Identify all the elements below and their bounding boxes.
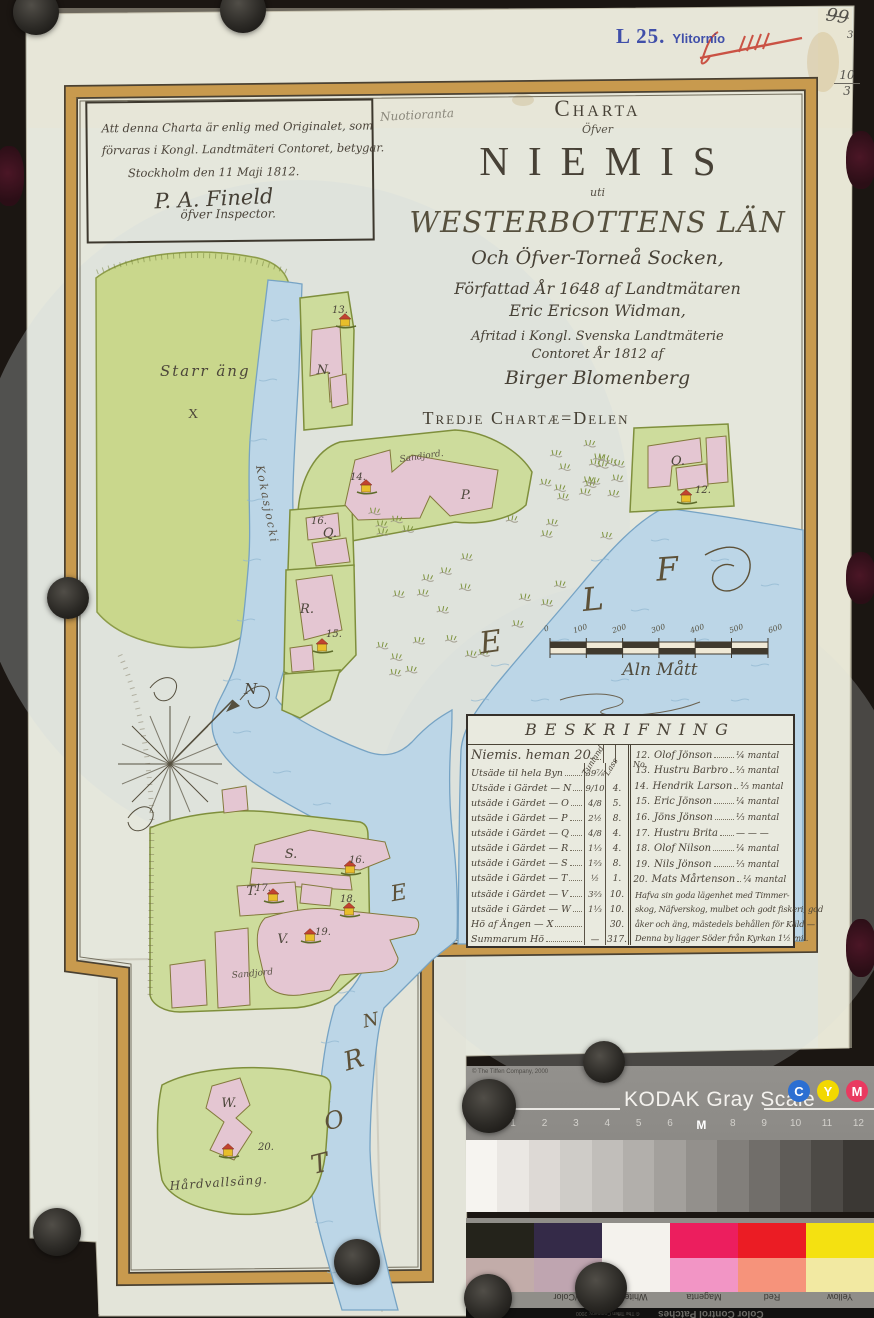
gray-patch <box>466 1140 497 1212</box>
table-row: utsäde i Gärdet — R 1⅓ 4. <box>468 839 628 854</box>
table-row: utsäde i Gärdet — S 1⅔ 8. <box>468 854 628 869</box>
holding-magnet <box>334 1239 380 1285</box>
scale-tick-labels: 0100200300400500600 <box>544 624 782 633</box>
table-row: 18. Olof Nilson ¼ mantal <box>631 839 796 855</box>
table-row: utsäde i Gärdet — V 3⅔ 10. <box>468 884 628 899</box>
table-row: Summarum Hö — 317. <box>468 930 628 945</box>
kodak-step-label: 10 <box>780 1118 811 1132</box>
meadow-label: Starr äng <box>160 362 251 380</box>
table-note-line: skog, Näfverskog, mulbet och godt fisker… <box>631 900 796 915</box>
compass-north-letter: N <box>243 680 258 698</box>
house-number-12: 12. <box>695 485 711 496</box>
stamp-code: L 25. <box>616 24 665 49</box>
kodak-step-label: 9 <box>749 1118 780 1132</box>
house-number-15: 15. <box>326 629 342 640</box>
fraction-numerator: 10 <box>834 68 860 84</box>
table-row: utsäde i Gärdet — Q 4/8 4. <box>468 824 628 839</box>
color-patch-column <box>806 1223 874 1292</box>
table-left-section: Niemis. heman 20. Utsäde til hela Byn 39… <box>468 745 628 945</box>
color-patch-label: Yellow <box>806 1292 874 1302</box>
title-made1: Författad År 1648 af Landtmätaren <box>385 279 810 298</box>
edge-clamp <box>846 131 874 189</box>
color-patch-column <box>670 1223 738 1292</box>
table-row: 14. Hendrik Larson ⅓ mantal <box>631 776 796 792</box>
kodak-step-label: 3 <box>560 1118 591 1132</box>
house-number-13: 13. <box>332 305 348 316</box>
water-letter-f: F <box>654 549 682 589</box>
kodak-step-label: 5 <box>623 1118 654 1132</box>
gray-patch <box>811 1140 842 1212</box>
gray-patch <box>654 1140 685 1212</box>
title-uti: uti <box>385 186 810 199</box>
parcel-letter-w: W. <box>221 1096 236 1111</box>
title-copy2: Contoret År 1812 af <box>385 347 810 362</box>
color-control-card: Black3/ColorWhiteMagentaRedYellow © The … <box>466 1218 874 1318</box>
gray-patch <box>592 1140 623 1212</box>
edge-clamp <box>846 919 874 977</box>
kodak-step-label: 4 <box>592 1118 623 1132</box>
title-ofver: Öfver <box>385 123 810 136</box>
table-row: Utsäde i Gärdet — N 9/10 4. <box>468 779 628 794</box>
magenta-dot: M <box>846 1080 868 1102</box>
parcel-letter-s: S. <box>285 847 298 862</box>
holding-magnet <box>462 1079 516 1133</box>
cyan-dot: C <box>788 1080 810 1102</box>
col-header-no: No. <box>633 760 647 769</box>
house-number-18: 18. <box>340 894 356 905</box>
title-copy1: Afritad i Kongl. Svenska Landtmäterie <box>385 329 810 344</box>
attestation-line2: förvaras i Kongl. Landtmäteri Contoret, … <box>102 137 362 162</box>
table-row: 16. Jöns Jönson ⅓ mantal <box>631 807 796 823</box>
kodak-copyright: © The Tiffen Company, 2000 <box>472 1069 548 1075</box>
gray-patch <box>717 1140 748 1212</box>
gray-patch <box>780 1140 811 1212</box>
pencil-fraction: 10 3 <box>834 68 860 98</box>
table-row: 17. Hustru Brita — — — <box>631 823 796 839</box>
parcel-letter-q: Q. <box>323 526 337 541</box>
color-patch-label: Magenta <box>670 1292 738 1302</box>
house-number-19: 19. <box>315 927 331 938</box>
gray-patch <box>686 1140 717 1212</box>
attestation-box: Att denna Charta är enlig med Originalet… <box>85 98 374 243</box>
parcel-letter-r: R. <box>299 602 314 617</box>
water-letter-l: L <box>579 579 605 619</box>
gray-patch <box>560 1140 591 1212</box>
table-note-line: Hafva sin goda lägenhet med Timmer- <box>631 885 796 900</box>
kodak-step-label: M <box>686 1118 717 1132</box>
house-number-16: 16. <box>349 855 365 866</box>
gray-patch <box>749 1140 780 1212</box>
kodak-gray-patches <box>466 1140 874 1212</box>
parcel-letter-n: N. <box>316 363 332 378</box>
table-row: 20. Mats Mårtenson ¼ mantal <box>631 870 796 886</box>
kodak-gray-scale-card: © The Tiffen Company, 2000 KODAK Gray Sc… <box>466 1066 874 1212</box>
table-notes: Hafva sin goda lägenhet med Timmer-skog,… <box>631 885 796 943</box>
scale-tick: 0 <box>543 623 550 633</box>
table-row: utsäde i Gärdet — P 2½ 8. <box>468 809 628 824</box>
holding-magnet <box>464 1274 512 1318</box>
title-author: Birger Blomenberg <box>385 367 810 389</box>
kodak-step-labels: A123456M89101112 <box>466 1118 874 1132</box>
kodak-step-label: 6 <box>654 1118 685 1132</box>
scale-caption: Aln Mått <box>600 660 720 680</box>
pencil-page-sub: 3 <box>847 30 853 41</box>
table-note-line: åker och äng, mästedels behållen för Käl… <box>631 914 796 929</box>
holding-magnet <box>575 1262 627 1314</box>
yellow-dot: Y <box>817 1080 839 1102</box>
table-row: utsäde i Gärdet — O 4/8 5. <box>468 794 628 809</box>
gray-patch <box>529 1140 560 1212</box>
parcel-number-16q: 16. <box>311 516 327 527</box>
kodak-step-label: 11 <box>811 1118 842 1132</box>
title-charta: Charta <box>385 96 810 122</box>
edge-clamp <box>846 552 874 604</box>
archive-stamp: L 25. Ylitornio <box>616 24 725 49</box>
title-county: WESTERBOTTENS LÄN <box>385 205 810 239</box>
photo-of-historical-map: Starr äng X Kokasjocki N. P. Q. R. O. S.… <box>0 0 874 1318</box>
parcel-letter-v: V. <box>277 932 288 947</box>
stamp-place: Ylitornio <box>672 31 725 46</box>
table-row: 13. Hustru Barbro ⅓ mantal <box>631 761 796 777</box>
table-row: 19. Nils Jönson ⅓ mantal <box>631 854 796 870</box>
pencil-page-number: 99 <box>824 4 850 28</box>
color-card-title: Color Control Patches <box>658 1308 764 1318</box>
house-number-17: 17. <box>255 883 271 894</box>
color-card-footer: © The Tiffen Company, 2000 Color Control… <box>466 1308 874 1318</box>
title-parish: Och Öfver-Torneå Socken, <box>385 247 810 269</box>
gray-patch <box>497 1140 528 1212</box>
title-made2: Eric Ericson Widman, <box>385 301 810 320</box>
table-row: 12. Olof Jönson ¼ mantal <box>631 745 796 761</box>
parcel-letter-p: P. <box>460 488 471 503</box>
color-patch-labels: Black3/ColorWhiteMagentaRedYellow <box>466 1292 874 1302</box>
holding-magnet <box>47 577 89 619</box>
edge-clamp <box>0 146 24 206</box>
color-patch-column <box>738 1223 806 1292</box>
table-right-section: 12. Olof Jönson ¼ mantal 13. Hustru Barb… <box>628 745 796 945</box>
table-row: Hö af Ängen — X 30. <box>468 915 628 930</box>
kodak-title: KODAK Gray Scale <box>624 1088 815 1112</box>
attestation-line1: Att denna Charta är enlig med Originalet… <box>101 115 361 140</box>
description-table: BESKRIFNING Niemis. heman 20. Utsäde til… <box>466 714 795 948</box>
kodak-step-label: 8 <box>717 1118 748 1132</box>
table-heading: BESKRIFNING <box>468 716 793 745</box>
house-number-14: 14. <box>350 472 366 483</box>
table-row: utsäde i Gärdet — T ½ 1. <box>468 869 628 884</box>
parcel-letter-o: O. <box>671 454 685 469</box>
kodak-step-label: 2 <box>529 1118 560 1132</box>
fraction-denominator: 3 <box>834 84 860 98</box>
color-patch-label: Red <box>738 1292 806 1302</box>
table-note-line: Denna by ligger Söder från Kyrkan 1½ mil… <box>631 929 796 944</box>
section-heading: Tredje Chartæ=Delen <box>392 408 660 429</box>
map-title-block: Charta Öfver NIEMIS uti WESTERBOTTENS LÄ… <box>385 96 810 389</box>
holding-magnet <box>33 1208 81 1256</box>
table-owner-rows: 12. Olof Jönson ¼ mantal 13. Hustru Barb… <box>631 745 796 885</box>
table-row: utsäde i Gärdet — W 1⅓ 10. <box>468 900 628 915</box>
color-patches <box>466 1223 874 1292</box>
house-number-20: 20. <box>257 1142 274 1153</box>
meadow-letter-x: X <box>188 407 198 422</box>
title-niemis: NIEMIS <box>385 137 810 185</box>
gray-patch <box>623 1140 654 1212</box>
gray-patch <box>843 1140 874 1212</box>
table-row: 15. Eric Jönson ¼ mantal <box>631 792 796 808</box>
holding-magnet <box>583 1041 625 1083</box>
kodak-step-label: 12 <box>843 1118 874 1132</box>
